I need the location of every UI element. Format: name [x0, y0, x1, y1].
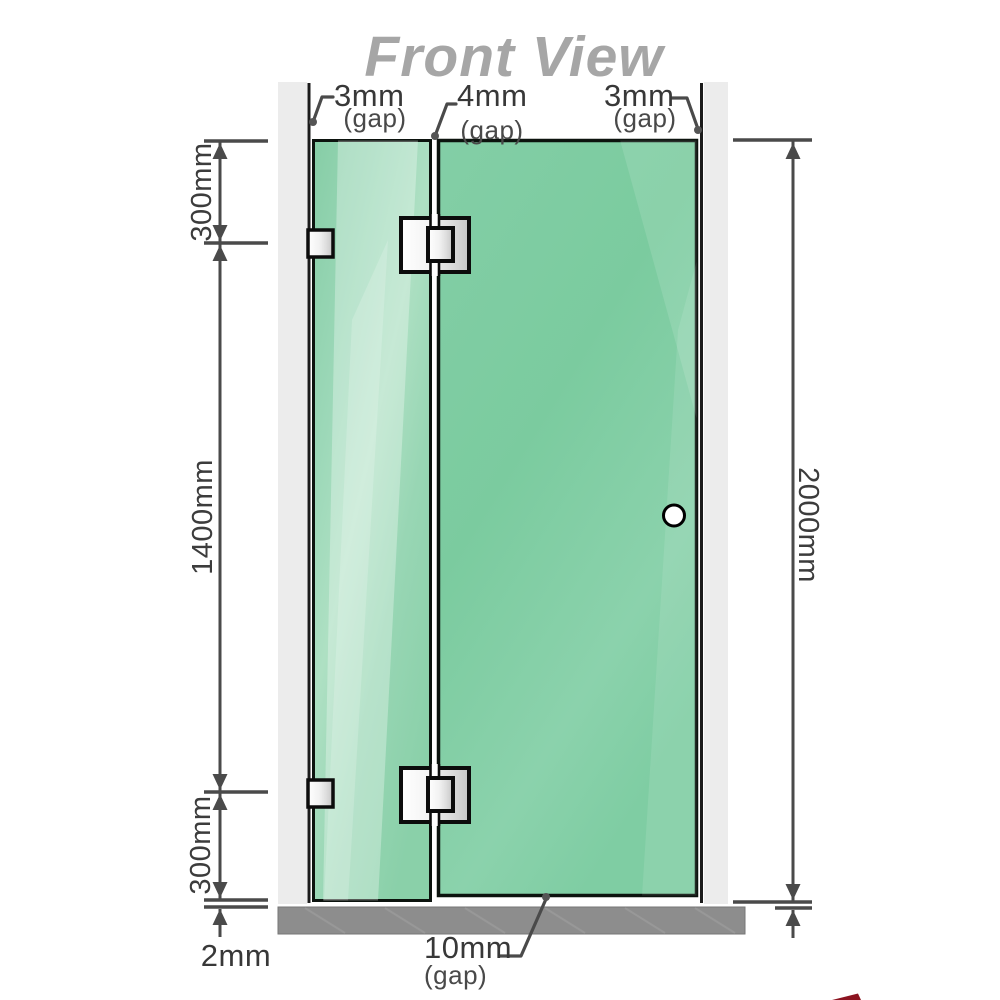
gap-middle-unit: (gap) [460, 115, 523, 145]
dimension-right: 2000mm [733, 140, 824, 938]
dim-label-2mm: 2mm [201, 938, 271, 973]
wall-bracket-bottom [308, 780, 333, 807]
wall-bracket-top [308, 230, 333, 257]
gap-left-unit: (gap) [343, 103, 406, 133]
gap-right-unit: (gap) [613, 103, 676, 133]
gap-bottom-unit: (gap) [424, 960, 487, 990]
logo-red-mark [832, 994, 861, 1000]
hinge-bottom [401, 764, 469, 826]
hinge-top [401, 214, 469, 276]
diagram-svg: 300mm 1400mm 300mm 2mm 2000mm 3mm (gap) … [0, 0, 1000, 1000]
dimension-left: 300mm 1400mm 300mm 2mm [185, 141, 271, 973]
door-panel-glass [439, 140, 698, 896]
dim-label-300mm-bottom: 300mm [185, 795, 217, 894]
dim-label-1400mm: 1400mm [187, 459, 219, 575]
wall-left [278, 82, 307, 904]
dim-label-2000mm: 2000mm [792, 467, 824, 583]
front-view-diagram: 300mm 1400mm 300mm 2mm 2000mm 3mm (gap) … [0, 0, 1000, 1000]
door-handle-knob [664, 505, 685, 526]
dim-label-300mm-top: 300mm [186, 142, 218, 241]
wall-right [704, 82, 728, 904]
page-title: Front View [364, 25, 666, 89]
